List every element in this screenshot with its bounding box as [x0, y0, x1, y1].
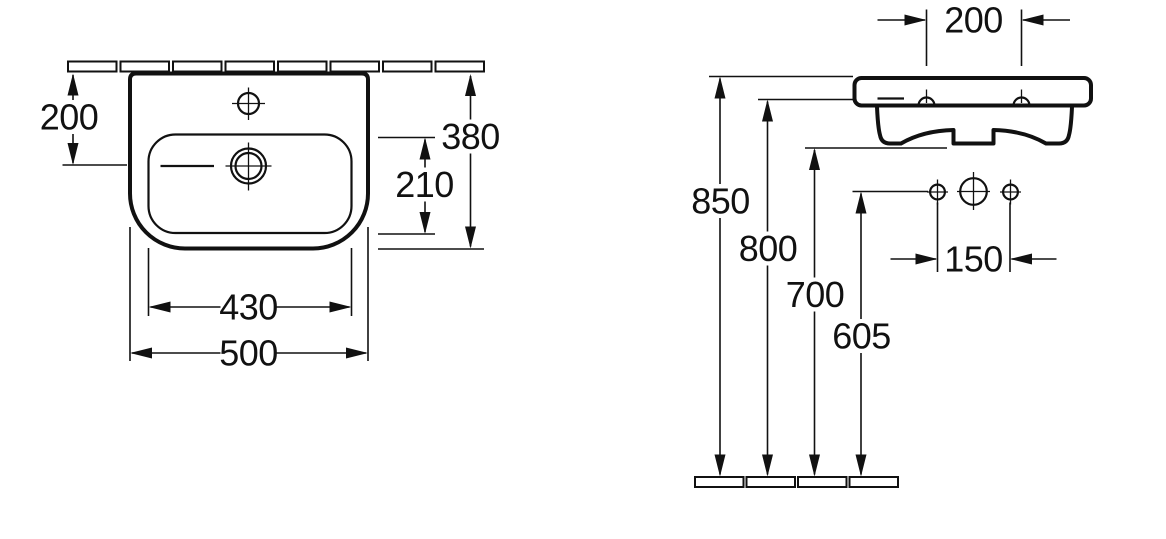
wall-tile	[173, 62, 222, 72]
drain-hole	[226, 143, 272, 191]
dim-label-connection-height: 605	[832, 316, 891, 357]
wall-tile	[436, 62, 485, 72]
dim-connection-spacing-150: 150	[891, 203, 1057, 280]
dim-label-rim-height: 850	[691, 181, 750, 222]
dim-overall-depth-380: 380	[378, 74, 500, 249]
dim-label-underside-height: 700	[786, 274, 845, 315]
dim-label-wall-to-drain: 200	[40, 97, 99, 138]
tap-hole	[232, 88, 265, 121]
supply-holes	[927, 172, 1021, 210]
wall-tile	[68, 62, 117, 72]
floor-tile	[695, 477, 744, 487]
dim-connection-height-605: 605	[832, 192, 928, 477]
dim-label-overall-depth: 380	[441, 116, 500, 157]
rim-outline	[855, 78, 1092, 106]
floor-tile	[747, 477, 796, 487]
front-view: 200 150 850 800	[691, 0, 1091, 487]
floor-tile	[798, 477, 847, 487]
supply-hole-left	[927, 180, 948, 205]
dim-label-fixing-spacing: 200	[944, 0, 1003, 41]
wall-tile	[331, 62, 380, 72]
wall-tiles	[68, 62, 484, 72]
washbasin-technical-drawing: 200 380 210 430	[0, 0, 1166, 539]
dim-underside-height-700: 700	[786, 148, 947, 477]
wall-tile	[278, 62, 327, 72]
body-outline	[877, 107, 1072, 144]
dim-fixing-spacing-200: 200	[878, 0, 1071, 66]
dim-label-fixing-height: 800	[739, 228, 798, 269]
fixing-hole	[919, 90, 935, 106]
waste-hole-center	[957, 172, 990, 210]
wall-tile	[121, 62, 170, 72]
dim-label-overall-width: 500	[219, 333, 278, 374]
supply-hole-right	[1000, 180, 1021, 205]
fixing-holes	[919, 90, 1030, 106]
dim-bowl-width-430: 430	[149, 248, 352, 328]
drawing-canvas: 200 380 210 430	[0, 0, 1166, 539]
floor-tiles	[695, 477, 898, 487]
dim-label-connection-spacing: 150	[944, 239, 1003, 280]
top-view: 200 380 210 430	[40, 62, 500, 374]
fixing-hole	[1014, 90, 1030, 106]
dim-label-bowl-depth: 210	[395, 164, 454, 205]
floor-tile	[850, 477, 899, 487]
dim-wall-to-drain-200: 200	[40, 74, 127, 166]
wall-tile	[226, 62, 275, 72]
wall-tile	[383, 62, 432, 72]
dim-label-bowl-width: 430	[219, 287, 278, 328]
